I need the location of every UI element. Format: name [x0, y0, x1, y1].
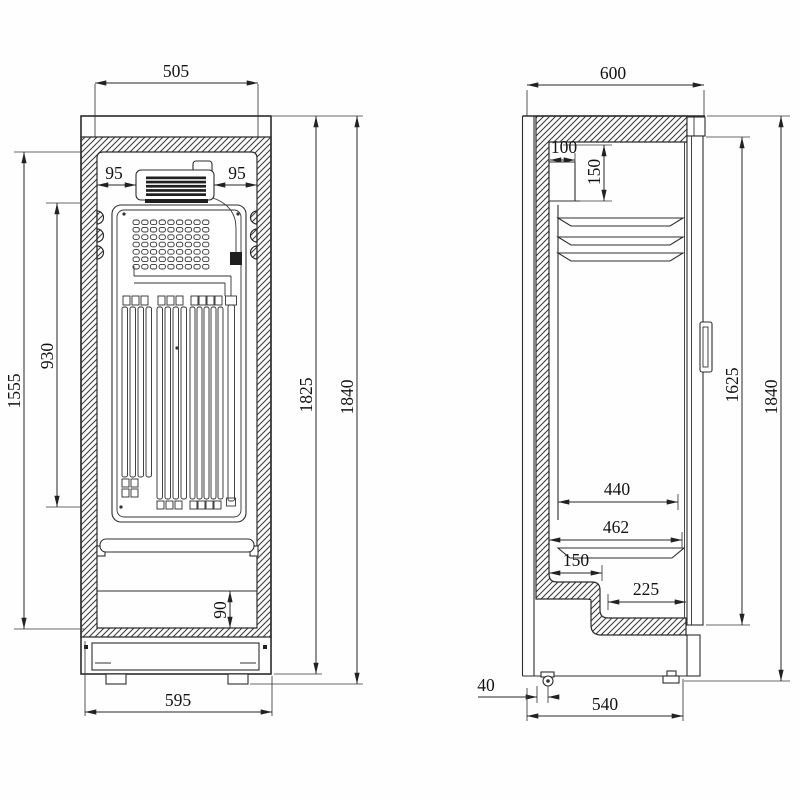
- shelf-2: [558, 237, 683, 245]
- interior-depth-label: 462: [603, 517, 629, 537]
- door-slab: [687, 136, 703, 625]
- rear-top-width-label: 505: [163, 61, 190, 81]
- recess-width-label: 225: [633, 579, 660, 599]
- body-height-label: 1825: [296, 377, 316, 412]
- inner-height-label: 1555: [4, 373, 24, 408]
- shelf-depth-label: 440: [604, 479, 631, 499]
- dim-shelf-depth: 440: [558, 479, 678, 510]
- dim-vent-gap-right: 95: [214, 163, 257, 185]
- lower-cover-bar: [97, 539, 258, 556]
- dim-door-height: 1625: [706, 137, 750, 625]
- front-bottom-panel: [687, 635, 700, 676]
- shelf-1: [558, 218, 683, 226]
- base-width-label: 595: [165, 690, 192, 710]
- dim-vent-gap-left: 95: [97, 163, 136, 185]
- vent-gap-left-label: 95: [105, 163, 123, 183]
- depth-label: 600: [600, 63, 627, 83]
- perforation-grid: [133, 220, 209, 269]
- lower-panel-label: 90: [210, 601, 230, 619]
- rear-offset-label: 40: [477, 675, 495, 695]
- caster-wheel: [541, 672, 554, 686]
- dim-evaporator-width: 100: [550, 137, 577, 168]
- dim-recess-width: 225: [608, 579, 686, 610]
- rear-view: 505 95 95 930 1555 90 595: [4, 61, 363, 716]
- dim-lower-panel: 90: [210, 591, 230, 628]
- condenser-panel: [112, 198, 246, 522]
- step-width-label: 150: [563, 550, 590, 570]
- dim-inner-height: 1555: [4, 152, 85, 629]
- total-height-rear-label: 1840: [337, 379, 357, 414]
- evaporator-width-label: 100: [551, 137, 578, 157]
- foot-left: [106, 674, 126, 684]
- base-depth-label: 540: [592, 694, 619, 714]
- evaporator-height-label: 150: [584, 159, 604, 186]
- foot-right: [228, 674, 248, 684]
- door-top-cap: [687, 117, 705, 136]
- vent-gap-right-label: 95: [228, 163, 246, 183]
- dim-rear-top-width: 505: [95, 61, 258, 137]
- drawing-canvas: 505 95 95 930 1555 90 595: [0, 0, 800, 800]
- vent-grille: [136, 161, 214, 203]
- door-height-label: 1625: [722, 367, 742, 402]
- shelves: [558, 218, 684, 558]
- condenser-length-label: 930: [37, 343, 57, 370]
- door: [685, 117, 713, 625]
- technical-drawing-page: 505 95 95 930 1555 90 595: [0, 0, 800, 800]
- base-plinth: [84, 643, 267, 670]
- evaporator-box: [549, 162, 575, 201]
- thermostat-box: [230, 252, 242, 265]
- side-view: 600 100 150 440 462 150: [477, 63, 790, 721]
- rear-panel: [523, 116, 535, 676]
- dim-condenser-length: 930: [37, 203, 81, 507]
- door-handle: [700, 322, 712, 372]
- shelf-3: [558, 253, 683, 261]
- dim-depth: 600: [527, 63, 704, 116]
- dim-interior-depth: 462: [549, 517, 682, 548]
- total-height-side-label: 1840: [761, 379, 781, 414]
- side-foot: [663, 671, 679, 683]
